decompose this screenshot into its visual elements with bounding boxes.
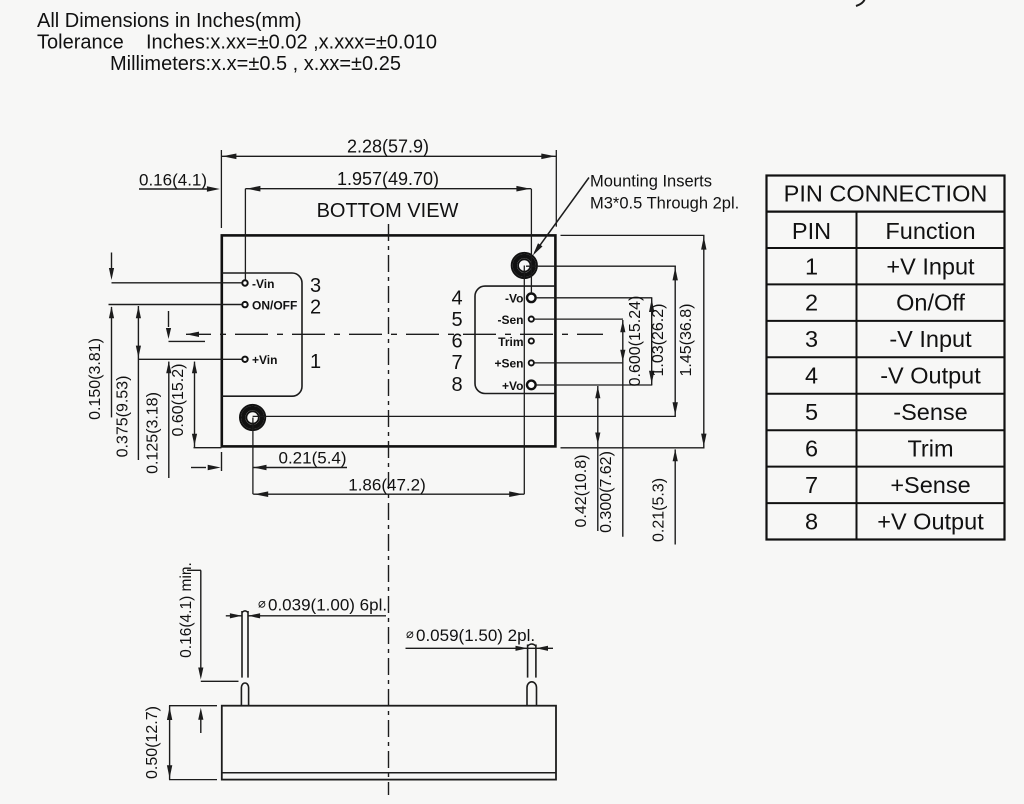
svg-text:4: 4: [451, 288, 462, 310]
svg-text:1.86(47.2): 1.86(47.2): [348, 476, 426, 495]
svg-text:2.28(57.9): 2.28(57.9): [347, 137, 429, 157]
svg-text:0.21(5.3): 0.21(5.3): [651, 478, 668, 542]
svg-text:⌀: ⌀: [406, 626, 414, 641]
svg-text:PIN: PIN: [792, 218, 831, 244]
svg-text:0.600(15.24): 0.600(15.24): [627, 296, 644, 387]
svg-text:0.16(4.1): 0.16(4.1): [139, 171, 207, 190]
svg-text:0.300(7.62): 0.300(7.62): [598, 451, 615, 533]
svg-text:0.50(12.7): 0.50(12.7): [144, 706, 161, 779]
svg-text:Trim: Trim: [907, 436, 953, 462]
svg-text:5: 5: [451, 309, 462, 331]
svg-text:-Sense: -Sense: [893, 399, 967, 425]
svg-text:+Sen: +Sen: [494, 357, 523, 371]
svg-text:All Dimensions in Inches(mm): All Dimensions in Inches(mm): [37, 10, 302, 32]
svg-text:1.45(36.8): 1.45(36.8): [678, 304, 695, 377]
svg-text:-Vin: -Vin: [252, 277, 274, 291]
svg-text:7: 7: [805, 472, 818, 498]
svg-text:⌀: ⌀: [258, 596, 266, 611]
svg-text:M3*0.5 Through 2pl.: M3*0.5 Through 2pl.: [590, 195, 739, 213]
svg-text:Mounting Inserts: Mounting Inserts: [590, 173, 712, 191]
svg-text:ON/OFF: ON/OFF: [252, 299, 297, 313]
svg-text:On/Off: On/Off: [896, 290, 965, 316]
svg-text:-Sen: -Sen: [497, 313, 523, 327]
svg-text:8: 8: [805, 508, 818, 534]
svg-text:Millimeters:x.x=±0.5 , x.xx=±0: Millimeters:x.x=±0.5 , x.xx=±0.25: [110, 53, 401, 75]
svg-text:0.059(1.50) 2pl.: 0.059(1.50) 2pl.: [416, 626, 535, 645]
svg-text:6: 6: [451, 331, 462, 353]
svg-text:6: 6: [805, 436, 818, 462]
svg-text:BOTTOM VIEW: BOTTOM VIEW: [317, 200, 459, 222]
svg-text:+Sense: +Sense: [890, 472, 970, 498]
svg-text:3: 3: [805, 326, 818, 352]
svg-text:0.150(3.81): 0.150(3.81): [87, 338, 104, 420]
svg-text:+Vo: +Vo: [502, 379, 523, 393]
svg-text:4: 4: [805, 363, 818, 389]
svg-text:1: 1: [805, 253, 818, 279]
svg-text:-Vo: -Vo: [505, 292, 523, 306]
svg-text:3: 3: [310, 275, 321, 297]
svg-text:1: 1: [310, 351, 321, 373]
svg-text:+Vin: +Vin: [252, 353, 277, 367]
svg-text:8: 8: [451, 374, 462, 396]
svg-text:2: 2: [805, 290, 818, 316]
svg-text:0.125(3.18): 0.125(3.18): [145, 392, 162, 474]
svg-text:Function: Function: [885, 218, 975, 244]
svg-text:-V Output: -V Output: [880, 363, 981, 389]
svg-text:+V Input: +V Input: [886, 253, 975, 279]
svg-text:+V Output: +V Output: [877, 508, 984, 534]
svg-text:2: 2: [310, 297, 321, 319]
svg-text:0.039(1.00) 6pl.: 0.039(1.00) 6pl.: [268, 596, 387, 615]
svg-text:0.375(9.53): 0.375(9.53): [115, 376, 132, 458]
svg-text:Trim: Trim: [498, 335, 523, 349]
svg-text:0.21(5.4): 0.21(5.4): [279, 449, 347, 468]
svg-text:1.03(26.2): 1.03(26.2): [650, 304, 667, 377]
svg-text:-V Input: -V Input: [889, 326, 972, 352]
svg-text:0.42(10.8): 0.42(10.8): [573, 455, 590, 528]
svg-text:Tolerance Inches:x.xx=±0.02: Tolerance Inches:x.xx=±0.02 ,x.xxx=±0.01…: [37, 32, 437, 54]
svg-text:5: 5: [805, 399, 818, 425]
svg-text:0.60(15.2): 0.60(15.2): [170, 364, 187, 437]
svg-text:7: 7: [451, 352, 462, 374]
svg-text:1.957(49.70): 1.957(49.70): [337, 169, 439, 189]
svg-text:PIN CONNECTION: PIN CONNECTION: [784, 181, 988, 207]
svg-text:0.16(4.1) min.: 0.16(4.1) min.: [178, 562, 195, 658]
